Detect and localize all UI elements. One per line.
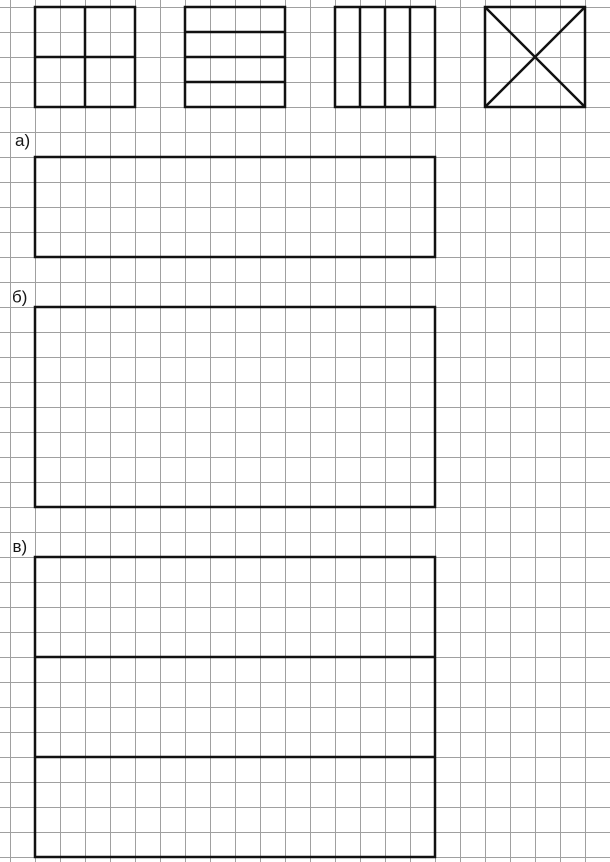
svg-text:а): а) — [15, 131, 30, 150]
svg-text:б): б) — [12, 288, 27, 307]
svg-text:в): в) — [13, 537, 28, 556]
